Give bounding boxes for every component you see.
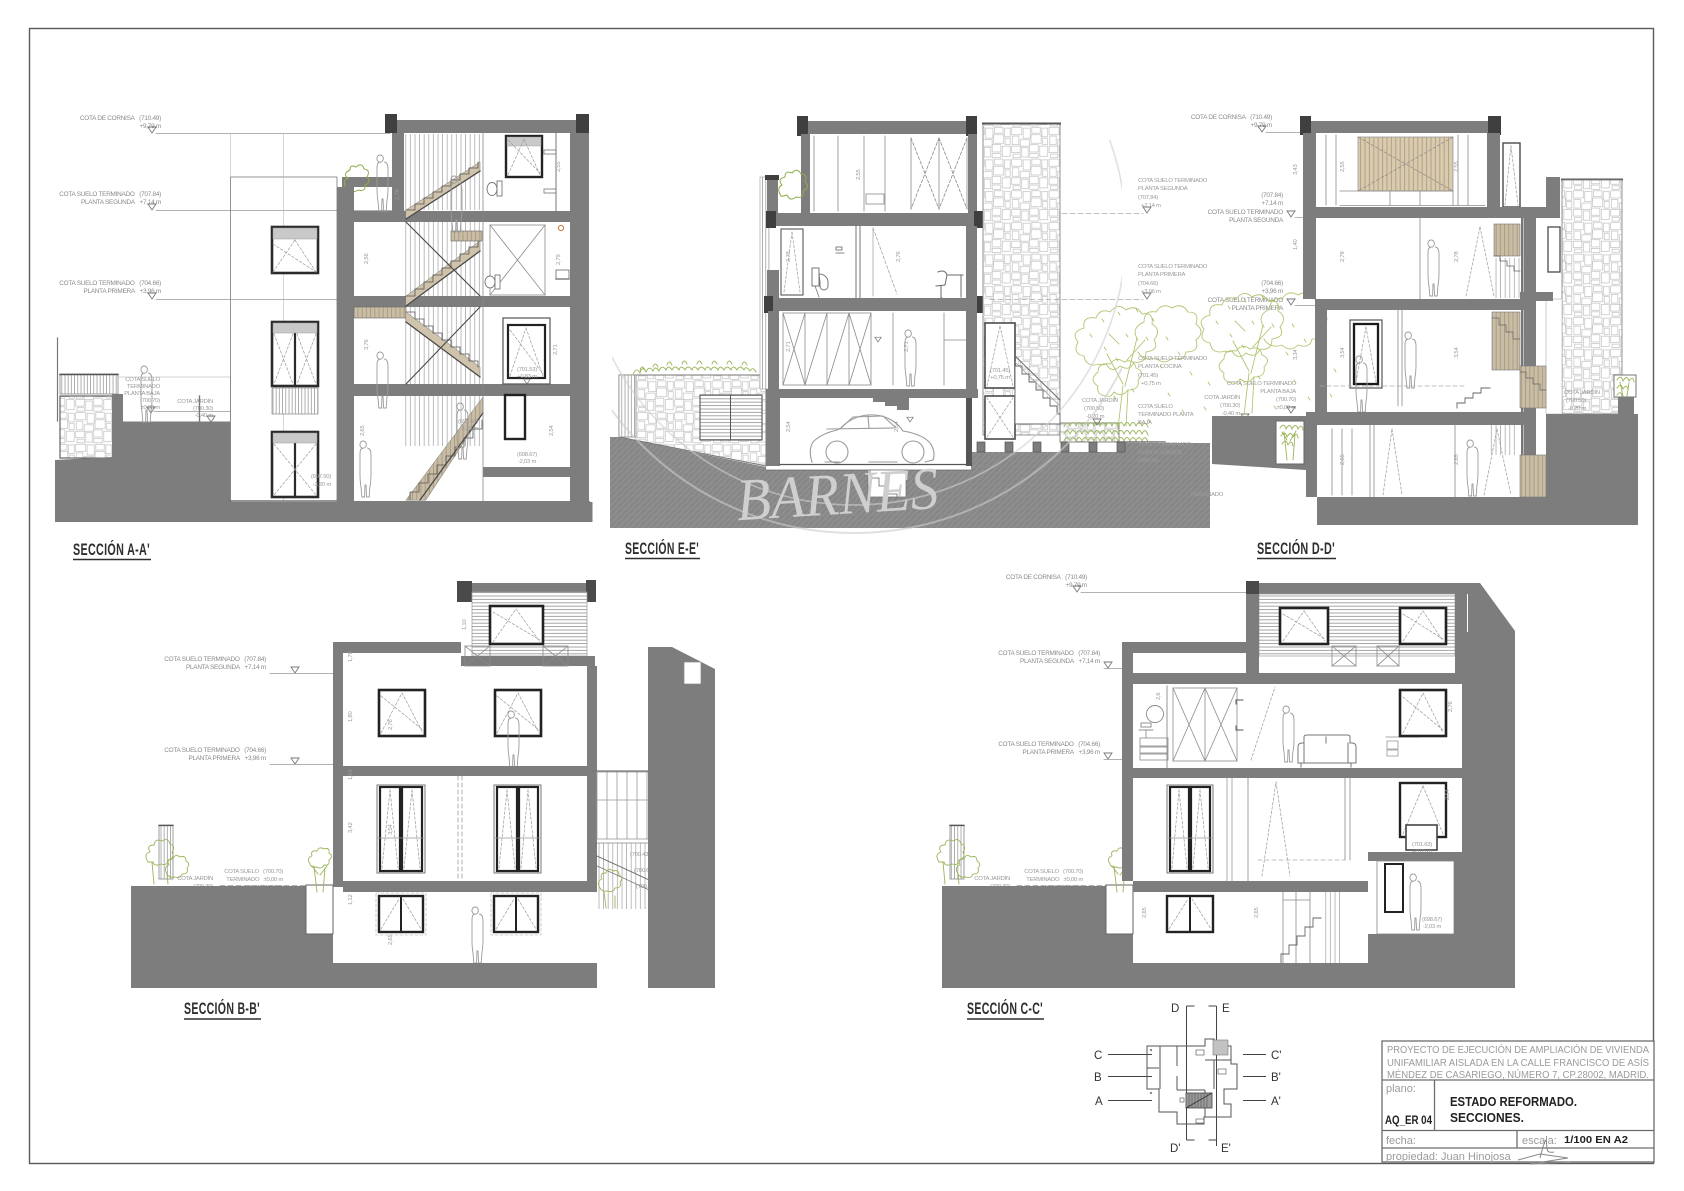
svg-text:3,42: 3,42 <box>348 823 354 833</box>
svg-text:1,40: 1,40 <box>1293 239 1299 250</box>
svg-text:C: C <box>1094 1050 1102 1062</box>
svg-text:3,43: 3,43 <box>1293 164 1299 175</box>
svg-text:1,12: 1,12 <box>348 895 354 905</box>
svg-text:2,55: 2,55 <box>856 169 862 180</box>
svg-text:SECCIÓN A-A': SECCIÓN A-A' <box>73 540 150 559</box>
svg-text:COTA SUELO TERMINADO (704.66: COTA SUELO TERMINADO (704.66) <box>164 747 266 754</box>
svg-text:TERMINADO ±0,00 m: TERMINADO ±0,00 m <box>226 877 283 883</box>
svg-text:PLANTA SEGUNDA +7,14 m: PLANTA SEGUNDA +7,14 m <box>1020 658 1100 665</box>
svg-text:1,78: 1,78 <box>395 189 401 200</box>
svg-text:+0,75 m: +0,75 m <box>1141 381 1161 387</box>
svg-text:2,54: 2,54 <box>549 425 555 436</box>
svg-text:2,6: 2,6 <box>1156 692 1162 700</box>
svg-text:propiedad: Juan Hinojosa: propiedad: Juan Hinojosa <box>1386 1151 1512 1163</box>
svg-text:COTA JARDÍN: COTA JARDÍN <box>1082 397 1118 404</box>
svg-text:2,71: 2,71 <box>904 342 910 352</box>
svg-text:2,65: 2,65 <box>360 425 366 436</box>
svg-text:A': A' <box>1271 1096 1281 1108</box>
svg-text:1,80: 1,80 <box>348 711 354 722</box>
svg-text:AQ_ER 04: AQ_ER 04 <box>1385 1115 1433 1127</box>
svg-text:BARNES: BARNES <box>735 455 941 533</box>
svg-text:2,55: 2,55 <box>1454 161 1460 172</box>
svg-text:2,76: 2,76 <box>896 251 902 262</box>
svg-text:1,78: 1,78 <box>348 651 354 662</box>
svg-text:+9,79 m: +9,79 m <box>139 123 161 130</box>
svg-text:2,65: 2,65 <box>1142 907 1148 918</box>
svg-text:TERMINADO ±0,00 m: TERMINADO ±0,00 m <box>1026 877 1083 883</box>
svg-text:2,78: 2,78 <box>786 251 792 262</box>
svg-text:3,54: 3,54 <box>1340 347 1346 358</box>
svg-text:(701.45): (701.45) <box>990 368 1010 374</box>
svg-text:2,54: 2,54 <box>894 421 900 432</box>
svg-text:(697.50): (697.50) <box>311 474 331 480</box>
svg-text:COTA SUELO (700.70): COTA SUELO (700.70) <box>224 869 283 875</box>
svg-text:PLANTA PRIMERA +3,96 m: PLANTA PRIMERA +3,96 m <box>1022 749 1100 756</box>
svg-text:(701.53): (701.53) <box>517 367 537 373</box>
svg-text:2,55: 2,55 <box>1340 161 1346 172</box>
svg-text:B: B <box>1094 1072 1102 1084</box>
svg-text:SECCIÓN C-C': SECCIÓN C-C' <box>967 999 1043 1018</box>
svg-text:A: A <box>1095 1096 1103 1108</box>
svg-text:1,10: 1,10 <box>462 619 468 630</box>
svg-text:COTA DE CORNISA (710.49): COTA DE CORNISA (710.49) <box>1191 114 1272 121</box>
svg-text:1,64: 1,64 <box>348 769 354 780</box>
svg-text:COTA SUELO TERMINADO: COTA SUELO TERMINADO <box>1138 264 1208 270</box>
svg-text:UNIFAMILIAR AISLADA EN LA CALL: UNIFAMILIAR AISLADA EN LA CALLE FRANCISC… <box>1387 1056 1649 1069</box>
svg-text:3,34: 3,34 <box>1293 349 1299 360</box>
svg-text:COTA SUELO TERMINADO (707.84: COTA SUELO TERMINADO (707.84) <box>164 656 266 663</box>
svg-text:COTA SUELO TERMINADO (707.84: COTA SUELO TERMINADO (707.84) <box>998 650 1100 657</box>
svg-text:2,78: 2,78 <box>1340 251 1346 262</box>
svg-text:COTA SUELO TERMINADO: COTA SUELO TERMINADO <box>1208 209 1284 216</box>
svg-text:COTA SUELO TERMINADO: COTA SUELO TERMINADO <box>1138 178 1208 184</box>
svg-text:1/100 EN A2: 1/100 EN A2 <box>1564 1134 1628 1146</box>
svg-text:escala:: escala: <box>1522 1135 1557 1147</box>
svg-text:3,54: 3,54 <box>388 824 394 835</box>
svg-text:(698.67): (698.67) <box>1422 917 1442 923</box>
svg-text:(707.84): (707.84) <box>1261 192 1283 199</box>
svg-text:(701.45): (701.45) <box>1138 373 1158 379</box>
svg-text:2,54: 2,54 <box>786 421 792 432</box>
svg-text:(698.00): (698.00) <box>1138 458 1158 464</box>
svg-text:+3,96 m: +3,96 m <box>1261 288 1283 295</box>
svg-text:COTA JARDÍN: COTA JARDÍN <box>177 875 213 882</box>
svg-text:COTA JARDÍN: COTA JARDÍN <box>974 875 1010 882</box>
svg-text:fecha:: fecha: <box>1386 1135 1416 1147</box>
svg-text:PROYECTO DE EJECUCIÓN DE AMPLI: PROYECTO DE EJECUCIÓN DE AMPLIACIÓN DE V… <box>1387 1043 1649 1056</box>
svg-text:COTA SUELO (700.70): COTA SUELO (700.70) <box>1024 869 1083 875</box>
svg-text:COTA JARDÍN: COTA JARDÍN <box>1204 394 1240 401</box>
svg-text:(701.63): (701.63) <box>1412 842 1432 848</box>
svg-text:(700.30): (700.30) <box>193 406 213 412</box>
svg-text:COTA DE CORNISA (710.49): COTA DE CORNISA (710.49) <box>80 115 161 122</box>
svg-text:(704.66): (704.66) <box>1261 280 1283 287</box>
svg-text:SECCIONES.: SECCIONES. <box>1450 1111 1524 1125</box>
svg-text:PLANTA PRIMERA +3,96 m: PLANTA PRIMERA +3,96 m <box>83 288 161 295</box>
svg-text:-3,10 m: -3,10 m <box>460 426 479 432</box>
svg-text:3,54: 3,54 <box>1454 347 1460 358</box>
svg-text:+7,14 m: +7,14 m <box>1261 200 1283 207</box>
svg-text:COTA SUELO TERMINADO (704.66: COTA SUELO TERMINADO (704.66) <box>998 741 1100 748</box>
svg-text:+0,75 m: +0,75 m <box>990 375 1010 381</box>
svg-text:2,54: 2,54 <box>1445 789 1451 800</box>
svg-text:PLANTA SEGUNDA: PLANTA SEGUNDA <box>1138 186 1188 192</box>
svg-text:(700.70): (700.70) <box>1276 397 1296 403</box>
svg-text:2,65: 2,65 <box>1454 454 1460 465</box>
svg-text:MÉNDEZ DE CASARIEGO, NÚMERO 7,: MÉNDEZ DE CASARIEGO, NÚMERO 7, CP.28002,… <box>1387 1068 1649 1081</box>
svg-text:D: D <box>1171 1003 1179 1015</box>
svg-text:3,76: 3,76 <box>364 339 370 350</box>
svg-text:C': C' <box>1271 1050 1282 1062</box>
svg-text:-2,03 m: -2,03 m <box>1423 924 1442 930</box>
svg-text:2,76: 2,76 <box>1448 701 1454 712</box>
svg-text:E: E <box>1222 1003 1230 1015</box>
svg-text:B': B' <box>1271 1072 1281 1084</box>
svg-text:2,65: 2,65 <box>388 934 394 945</box>
svg-text:E': E' <box>1221 1143 1231 1155</box>
svg-text:2,71: 2,71 <box>786 342 792 352</box>
svg-text:-2,03 m: -2,03 m <box>518 459 537 465</box>
svg-text:2,65: 2,65 <box>1254 907 1260 918</box>
svg-text:SUELO TERMINADO: SUELO TERMINADO <box>1138 442 1192 448</box>
svg-text:(707.84): (707.84) <box>1138 195 1158 201</box>
svg-text:(704.66): (704.66) <box>1138 281 1158 287</box>
svg-text:2,76: 2,76 <box>388 719 394 730</box>
svg-text:(700.50): (700.50) <box>1566 398 1586 404</box>
svg-text:+9,79 m: +9,79 m <box>1250 122 1272 129</box>
svg-text:COTA SUELO TERMINADO: COTA SUELO TERMINADO <box>1138 356 1208 362</box>
svg-text:2,71: 2,71 <box>553 345 559 355</box>
svg-text:PLANTA SEGUNDA: PLANTA SEGUNDA <box>1229 217 1284 224</box>
svg-text:2,65: 2,65 <box>1340 454 1346 465</box>
svg-text:SECCIÓN D-D': SECCIÓN D-D' <box>1257 539 1335 558</box>
svg-text:-0,20 m: -0,20 m <box>1568 406 1587 412</box>
svg-text:plano:: plano: <box>1386 1083 1416 1095</box>
svg-text:COTA SUELO TERMINADO (707.84: COTA SUELO TERMINADO (707.84) <box>59 191 161 198</box>
svg-text:2,56: 2,56 <box>364 253 370 264</box>
svg-text:TERMINADO PLANTA: TERMINADO PLANTA <box>1138 412 1194 418</box>
svg-text:BAJA: BAJA <box>1138 420 1152 426</box>
svg-text:PLANTA COCINA: PLANTA COCINA <box>1138 364 1182 370</box>
svg-text:(700.50): (700.50) <box>1084 406 1104 412</box>
svg-text:TERMINADO: TERMINADO <box>1190 492 1224 498</box>
svg-text:COTA JARDÍN: COTA JARDÍN <box>1564 389 1600 396</box>
svg-text:PLANTA GARAJE: PLANTA GARAJE <box>1138 450 1182 456</box>
svg-text:COTA DE CORNISA (710.49): COTA DE CORNISA (710.49) <box>1006 574 1087 581</box>
svg-text:PLANTA SEGUNDA +7,14 m: PLANTA SEGUNDA +7,14 m <box>186 664 266 671</box>
svg-text:COTA SUELO TERMINADO (704.66: COTA SUELO TERMINADO (704.66) <box>59 280 161 287</box>
svg-text:PLANTA PRIMERA +3,96 m: PLANTA PRIMERA +3,96 m <box>188 755 266 762</box>
svg-text:+9,79 m: +9,79 m <box>1065 582 1087 589</box>
svg-text:(698.67): (698.67) <box>517 452 537 458</box>
svg-text:(697.60): (697.60) <box>458 419 478 425</box>
svg-text:COTA JARDÍN: COTA JARDÍN <box>177 398 213 405</box>
svg-text:ESTADO REFORMADO.: ESTADO REFORMADO. <box>1450 1095 1577 1109</box>
svg-text:PLANTA BAJA: PLANTA BAJA <box>1260 389 1296 395</box>
svg-text:(700.43): (700.43) <box>630 852 650 858</box>
svg-text:PLANTA PRIMERA: PLANTA PRIMERA <box>1232 305 1284 312</box>
svg-text:D': D' <box>1170 1143 1181 1155</box>
svg-text:PLANTA PRIMERA: PLANTA PRIMERA <box>1138 272 1185 278</box>
svg-text:(700.30): (700.30) <box>1220 403 1240 409</box>
svg-text:COTA SUELO: COTA SUELO <box>1138 404 1173 410</box>
svg-text:2,78: 2,78 <box>1454 251 1460 262</box>
svg-text:SECCIÓN E-E': SECCIÓN E-E' <box>625 539 699 558</box>
svg-text:-3,20 m: -3,20 m <box>313 482 332 488</box>
svg-text:2,55: 2,55 <box>556 161 562 172</box>
svg-text:SECCIÓN B-B': SECCIÓN B-B' <box>184 999 260 1018</box>
svg-text:2,79: 2,79 <box>556 255 562 265</box>
